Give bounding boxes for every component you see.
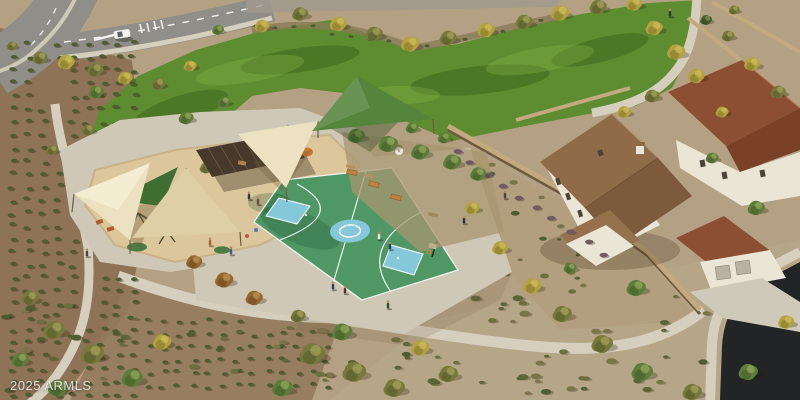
tree-highlight (29, 292, 36, 299)
desert-shrub (519, 301, 527, 306)
orchard-shrub (102, 41, 108, 45)
orchard-shrub (71, 42, 77, 46)
orchard-shrub (27, 382, 33, 386)
orchard-shrub (232, 360, 238, 364)
orchard-shrub (217, 357, 223, 361)
desert-shrub (580, 284, 587, 288)
person-shadow (669, 16, 674, 18)
orchard-shrub (11, 120, 17, 124)
orchard-shrub (188, 344, 194, 348)
free-throw-dot (397, 257, 399, 259)
orchard-shrub (117, 353, 123, 357)
tree-highlight (409, 38, 417, 46)
orchard-shrub (102, 393, 108, 397)
tree-highlight (161, 336, 169, 344)
tree-highlight (124, 73, 130, 79)
person-body (669, 11, 671, 16)
desert-shrub (540, 274, 549, 279)
desert-shrub (498, 307, 504, 310)
desert-shrub (541, 389, 551, 395)
orchard-shrub (100, 314, 106, 318)
orchard-shrub (27, 265, 33, 269)
tree-highlight (281, 381, 290, 390)
tree-highlight (523, 16, 530, 23)
tree-highlight (297, 311, 303, 317)
desert-shrub (479, 381, 485, 384)
free-throw-dot (305, 214, 307, 216)
tree-highlight (711, 154, 716, 159)
desert-shrub (21, 347, 32, 353)
person-body (387, 303, 389, 308)
orchard-shrub (68, 120, 74, 124)
orchard-shrub (42, 119, 48, 123)
orchard-shrub (11, 55, 17, 59)
orchard-shrub (54, 340, 60, 344)
desert-shrub (661, 329, 667, 332)
orchard-shrub (114, 43, 120, 47)
orchard-shrub (220, 384, 226, 388)
orchard-shrub (205, 345, 211, 349)
desert-shrub (575, 277, 581, 280)
desert-shrub (525, 391, 531, 394)
desert-shrub (189, 364, 199, 369)
desert-shrub (4, 388, 13, 393)
orchard-shrub (221, 333, 227, 337)
orchard-shrub (311, 369, 317, 373)
strip-shrub (310, 24, 315, 27)
desert-shrub (113, 331, 121, 335)
tree-highlight (352, 364, 362, 374)
strip-shrub (462, 38, 467, 41)
orchard-shrub (25, 209, 31, 213)
orchard-shrub (113, 304, 119, 308)
orchard-shrub (42, 240, 48, 244)
tree-highlight (223, 274, 231, 282)
orchard-shrub (117, 365, 123, 369)
tree-highlight (39, 53, 45, 59)
orchard-shrub (10, 394, 16, 398)
orchard-shrub (115, 277, 121, 281)
tree-highlight (443, 134, 448, 139)
orchard-shrub (10, 330, 16, 334)
desert-shrub (591, 329, 600, 334)
orchard-shrub (57, 304, 63, 308)
orchard-shrub (158, 386, 164, 390)
tree-highlight (373, 28, 380, 35)
purple-shrub (547, 216, 555, 221)
person-body (86, 251, 88, 256)
strip-shrub (386, 39, 391, 42)
tree-highlight (651, 91, 657, 97)
person-shadow (86, 256, 91, 258)
orchard-shrub (128, 54, 134, 58)
orchard-shrub (325, 345, 331, 349)
tree-highlight (561, 307, 569, 315)
desert-shrub (9, 350, 14, 353)
tree-highlight (387, 137, 395, 145)
orchard-shrub (8, 213, 14, 217)
orchard-shrub (114, 67, 120, 71)
orchard-shrub (193, 359, 199, 363)
orchard-shrub (101, 366, 107, 370)
orchard-shrub (41, 146, 47, 150)
desert-shrub (402, 352, 411, 357)
orchard-shrub (38, 212, 44, 216)
desert-shrub (316, 372, 325, 377)
orchard-shrub (8, 249, 14, 253)
orchard-shrub (69, 265, 75, 269)
desert-shrub (698, 359, 707, 364)
orchard-shrub (12, 300, 18, 304)
orchard-shrub (58, 183, 64, 187)
person-head (504, 191, 507, 194)
tree-highlight (95, 87, 101, 93)
orchard-shrub (9, 67, 15, 71)
orchard-shrub (27, 317, 33, 321)
desert-shrub (133, 317, 138, 320)
desert-shrub (100, 377, 105, 380)
person-head (86, 249, 89, 252)
orchard-shrub (248, 357, 254, 361)
orchard-shrub (175, 360, 181, 364)
tree-highlight (601, 337, 610, 346)
orchard-shrub (54, 237, 60, 241)
orchard-shrub (236, 382, 242, 386)
tree-highlight (19, 354, 26, 361)
orchard-shrub (175, 334, 181, 338)
desert-shrub (566, 386, 575, 391)
person-body (230, 249, 232, 254)
person-shadow (230, 254, 235, 256)
orchard-shrub (38, 133, 44, 137)
desert-shrub (603, 329, 611, 334)
orchard-shrub (53, 198, 59, 202)
tree-highlight (727, 32, 732, 37)
orchard-shrub (102, 382, 108, 386)
orchard-shrub (177, 321, 183, 325)
tree-highlight (471, 203, 477, 209)
orchard-shrub (266, 357, 272, 361)
orchard-shrub (248, 372, 254, 376)
orchard-shrub (42, 302, 48, 306)
park-aerial-photo (0, 0, 800, 400)
orchard-shrub (71, 369, 77, 373)
tree-highlight (411, 124, 416, 129)
tree-highlight (94, 64, 101, 71)
desert-shrub (49, 356, 57, 360)
orchard-shrub (43, 353, 49, 357)
tree-highlight (310, 345, 321, 356)
desert-shrub (37, 320, 45, 324)
orchard-shrub (130, 353, 136, 357)
person-shadow (387, 308, 392, 310)
orchard-shrub (237, 320, 243, 324)
desert-shrub (221, 337, 228, 341)
desert-shrub (394, 366, 401, 370)
orchard-shrub (72, 96, 78, 100)
desert-shrub (642, 387, 651, 392)
purple-shrub (499, 184, 507, 189)
strip-shrub (291, 25, 296, 28)
orchard-shrub (39, 264, 45, 268)
desert-shrub (488, 318, 497, 323)
tree-highlight (499, 242, 506, 249)
orchard-shrub (12, 380, 18, 384)
orchard-shrub (26, 119, 32, 123)
orchard-shrub (23, 132, 29, 136)
desert-shrub (322, 378, 327, 381)
tree-highlight (11, 42, 16, 47)
tree-highlight (447, 32, 454, 39)
orchard-shrub (145, 359, 151, 363)
orchard-shrub (71, 274, 77, 278)
person-head (463, 216, 466, 219)
purple-shrub (533, 205, 541, 210)
desert-shrub (581, 387, 587, 391)
orchard-shrub (87, 57, 93, 61)
orchard-shrub (56, 171, 62, 175)
orchard-shrub (101, 300, 107, 304)
tree-highlight (189, 61, 194, 66)
orchard-shrub (97, 106, 103, 110)
desert-shrub (513, 295, 524, 301)
desert-shrub (535, 380, 541, 383)
orchard-shrub (72, 109, 78, 113)
person-shadow (248, 199, 253, 201)
person-head (387, 301, 390, 304)
desert-shrub (656, 380, 664, 384)
person-head (389, 242, 392, 245)
tree-highlight (755, 202, 762, 209)
orchard-shrub (42, 186, 48, 190)
desert-shrub (518, 259, 523, 262)
orchard-shrub (145, 318, 151, 322)
person-body (257, 199, 259, 204)
orchard-shrub (296, 333, 302, 337)
tree-highlight (299, 8, 306, 15)
orchard-shrub (37, 379, 43, 383)
orchard-shrub (248, 344, 254, 348)
person-shadow (332, 289, 337, 291)
orchard-shrub (267, 383, 273, 387)
orchard-shrub (10, 341, 16, 345)
person-shadow (209, 245, 214, 247)
orchard-shrub (147, 331, 153, 335)
orchard-shrub (56, 251, 62, 255)
orchard-shrub (103, 276, 109, 280)
tree-highlight (90, 346, 100, 356)
tree-highlight (131, 371, 140, 380)
orchard-shrub (57, 261, 63, 265)
orchard-shrub (57, 277, 63, 281)
orchard-shrub (12, 94, 18, 98)
orchard-shrub (191, 384, 197, 388)
orchard-shrub (71, 290, 77, 294)
tree-highlight (193, 256, 200, 263)
person-head (378, 232, 381, 235)
orchard-shrub (102, 287, 108, 291)
orchard-shrub (38, 199, 44, 203)
tree-highlight (185, 113, 191, 119)
person-shadow (257, 204, 262, 206)
tree-highlight (559, 7, 567, 15)
orchard-shrub (41, 274, 47, 278)
orchard-shrub (222, 372, 228, 376)
person-shadow (389, 249, 394, 251)
tree-highlight (157, 79, 163, 85)
orchard-shrub (266, 345, 272, 349)
tree-highlight (635, 281, 643, 289)
orchard-shrub (53, 288, 59, 292)
orchard-shrub (70, 250, 76, 254)
orchard-shrub (23, 196, 29, 200)
purple-shrub (585, 240, 593, 245)
orchard-shrub (40, 172, 46, 176)
orchard-shrub (10, 200, 16, 204)
orchard-shrub (175, 346, 181, 350)
orchard-shrub (25, 108, 31, 112)
orchard-shrub (42, 252, 48, 256)
person-shadow (463, 223, 468, 225)
tree-highlight (341, 325, 350, 334)
desert-shrub (216, 348, 223, 352)
orchard-shrub (131, 328, 137, 332)
orchard-shrub (248, 383, 254, 387)
desert-shrub (518, 374, 528, 380)
purple-shrub (465, 160, 473, 165)
person-body (332, 284, 334, 289)
orchard-shrub (267, 333, 273, 337)
tree-highlight (87, 126, 92, 131)
desert-shrub (568, 289, 576, 293)
desert-shrub (538, 196, 544, 200)
orchard-shrub (26, 93, 32, 97)
orchard-shrub (26, 239, 32, 243)
orchard-shrub (11, 238, 17, 242)
desert-shrub (236, 330, 243, 334)
tree-highlight (623, 107, 629, 113)
strip-shrub (424, 44, 429, 47)
tree-highlight (393, 381, 402, 390)
orchard-shrub (86, 43, 92, 47)
person-shadow (344, 293, 349, 295)
person-body (209, 240, 211, 245)
orchard-shrub (73, 239, 79, 243)
desert-shrub (510, 320, 516, 323)
person-head (332, 282, 335, 285)
desert-shrub (557, 224, 565, 228)
purple-shrub (454, 149, 462, 154)
orchard-shrub (85, 393, 91, 397)
tree-highlight (253, 292, 260, 299)
desert-shrub (4, 315, 9, 318)
orchard-shrub (237, 347, 243, 351)
desert-shrub (583, 376, 590, 380)
strip-shrub (500, 30, 505, 33)
person-body (248, 194, 250, 199)
desert-shrub (531, 374, 541, 380)
desert-shrub (427, 378, 437, 384)
tree-highlight (447, 367, 455, 375)
orchard-shrub (28, 148, 34, 152)
tree-highlight (223, 98, 228, 103)
orchard-shrub (132, 290, 138, 294)
orchard-shrub (86, 329, 92, 333)
strip-shrub (348, 35, 353, 38)
tree-highlight (217, 26, 222, 31)
orchard-shrub (70, 68, 76, 72)
strip-shrub (538, 19, 543, 22)
purple-shrub (566, 230, 574, 235)
person-head (248, 192, 251, 195)
orchard-shrub (173, 369, 179, 373)
person-body (504, 193, 506, 198)
orchard-shrub (25, 339, 31, 343)
tree-highlight (695, 70, 702, 77)
tree-highlight (641, 365, 650, 374)
desert-shrub (488, 163, 495, 167)
orchard-shrub (27, 368, 33, 372)
desert-shrub (435, 355, 440, 358)
orchard-shrub (86, 382, 92, 386)
orchard-shrub (54, 43, 60, 47)
tree-highlight (477, 168, 484, 175)
orchard-shrub (12, 277, 18, 281)
desert-shrub (279, 340, 287, 344)
orchard-shrub (11, 159, 17, 163)
orchard-shrub (133, 300, 139, 304)
rubber-pad (214, 246, 230, 254)
tree-highlight (675, 46, 683, 54)
orchard-shrub (24, 41, 30, 45)
orchard-shrub (193, 371, 199, 375)
orchard-shrub (206, 332, 212, 336)
orchard-shrub (112, 313, 118, 317)
tree-highlight (337, 18, 344, 25)
tree-highlight (721, 108, 726, 113)
orchard-shrub (325, 386, 331, 390)
desert-shrub (544, 355, 549, 358)
orchard-shrub (9, 222, 15, 226)
tree-highlight (653, 22, 660, 29)
orchard-shrub (23, 158, 29, 162)
desert-shrub (539, 237, 547, 241)
orchard-shrub (38, 109, 44, 113)
tree-highlight (531, 280, 539, 288)
orchard-shrub (8, 369, 14, 373)
orchard-shrub (71, 134, 77, 138)
tree-highlight (51, 146, 56, 151)
orchard-shrub (130, 394, 136, 398)
orchard-shrub (161, 320, 167, 324)
person-shadow (504, 198, 509, 200)
orchard-shrub (131, 40, 137, 44)
orchard-shrub (70, 80, 76, 84)
desert-shrub (37, 337, 45, 342)
orchard-shrub (54, 226, 60, 230)
orchard-shrub (112, 105, 118, 109)
orchard-shrub (204, 371, 210, 375)
desert-shrub (64, 303, 73, 308)
orchard-shrub (310, 382, 316, 386)
desert-shrub (25, 306, 35, 312)
desert-shrub (120, 343, 126, 346)
orchard-shrub (148, 344, 154, 348)
orchard-shrub (127, 316, 133, 320)
orchard-shrub (86, 106, 92, 110)
desert-shrub (186, 332, 195, 337)
desert-shrub (559, 349, 568, 354)
